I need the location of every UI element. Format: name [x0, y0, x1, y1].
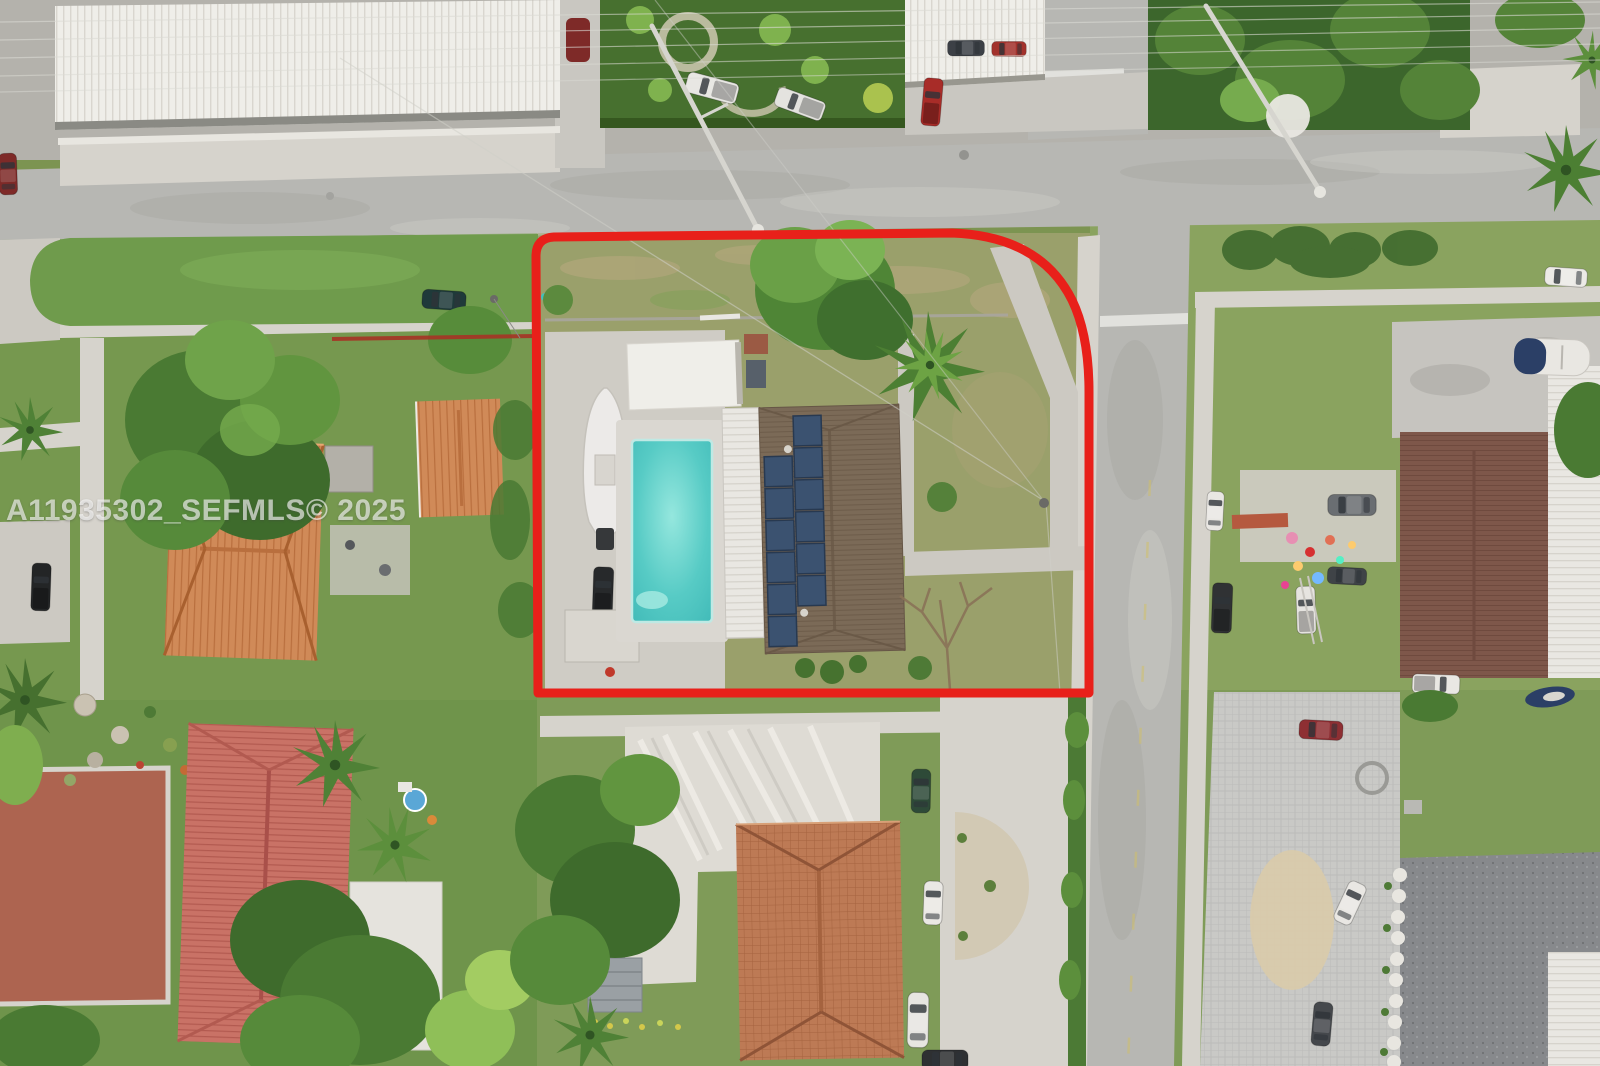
terracotta-patio — [0, 768, 168, 1004]
east-house-lower — [1380, 852, 1600, 1066]
dark-gray-car — [1311, 1001, 1334, 1046]
parked-car-dark-red — [566, 18, 590, 62]
garden-yard — [600, 0, 905, 128]
aerial-photo: A11935302_SEFMLS© 2025 — [0, 0, 1600, 1066]
dark-car-bottom-edge — [922, 1050, 968, 1066]
white-sedan-swale — [1205, 491, 1224, 531]
black-pickup-truck — [31, 563, 52, 611]
white-sedan — [923, 881, 944, 925]
gray-suv — [1328, 495, 1376, 516]
red-car — [1299, 719, 1344, 740]
brick-path — [1232, 513, 1288, 529]
ac-unit — [1404, 800, 1422, 814]
terracotta-hip-roof — [736, 822, 904, 1061]
white-van — [907, 992, 929, 1048]
screened-patio-roof — [722, 408, 764, 639]
dark-hatchback — [1327, 566, 1367, 585]
dark-pickup — [1211, 583, 1233, 634]
yellow-green-bush — [863, 83, 893, 113]
boat-east — [1513, 338, 1590, 377]
gray-shed — [325, 446, 373, 492]
canopy-carport — [627, 340, 743, 410]
main-house-roof — [759, 404, 905, 654]
green-sedan — [911, 769, 931, 813]
orange-tile-casita — [416, 399, 504, 518]
